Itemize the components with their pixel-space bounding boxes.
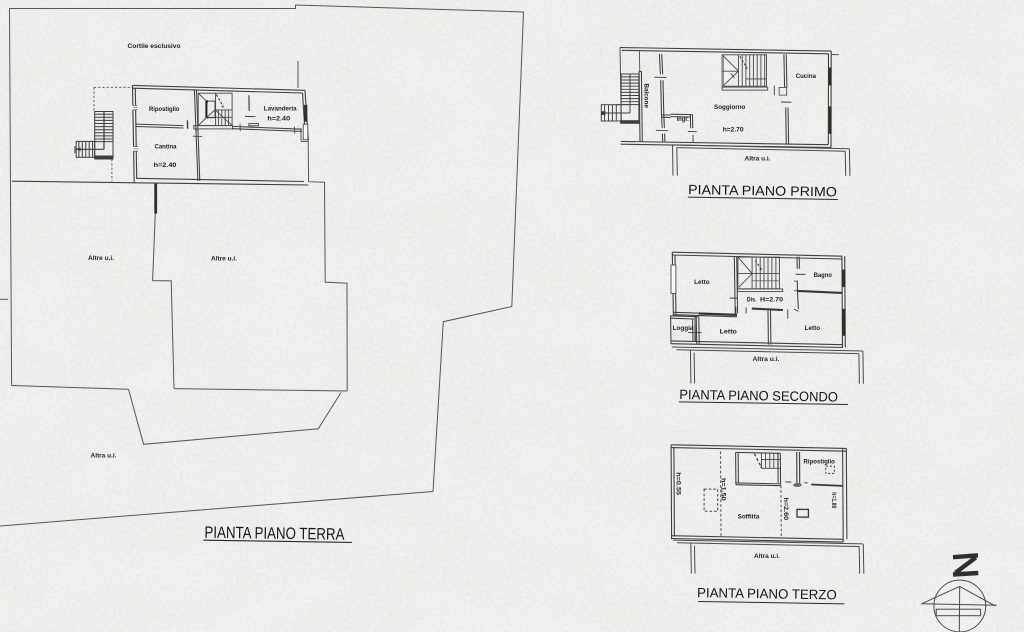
svg-text:Altra u.i.: Altra u.i.: [91, 453, 117, 460]
svg-text:Letto: Letto: [694, 279, 710, 286]
svg-text:Letto: Letto: [805, 325, 821, 332]
svg-text:H=2.70: H=2.70: [760, 297, 783, 304]
svg-text:h=1.80: h=1.80: [830, 492, 837, 509]
svg-text:Cantina: Cantina: [155, 144, 177, 151]
svg-text:Bagno: Bagno: [814, 272, 832, 279]
svg-text:Altra u.i.: Altra u.i.: [754, 553, 780, 560]
svg-text:Letto: Letto: [720, 328, 737, 335]
svg-text:Cortile esclusivo: Cortile esclusivo: [128, 43, 181, 50]
svg-text:Soggiorno: Soggiorno: [714, 104, 745, 111]
svg-text:Altre u.i.: Altre u.i.: [88, 255, 114, 262]
svg-text:Altra u.i.: Altra u.i.: [753, 356, 780, 363]
svg-text:h=0.55: h=0.55: [675, 472, 682, 495]
svg-text:Cucina: Cucina: [796, 73, 816, 80]
svg-text:h=2.40: h=2.40: [154, 162, 177, 169]
svg-text:Balcone: Balcone: [643, 84, 650, 109]
svg-text:Altre u.i.: Altre u.i.: [211, 256, 237, 263]
svg-text:Altra u.i.: Altra u.i.: [745, 155, 771, 162]
svg-text:Ripostiglio: Ripostiglio: [804, 459, 835, 466]
svg-text:h=2.60: h=2.60: [782, 498, 789, 521]
svg-text:h=2.70: h=2.70: [723, 127, 744, 134]
svg-text:Ingr.: Ingr.: [677, 116, 689, 123]
svg-text:Lavanderia: Lavanderia: [264, 105, 297, 112]
svg-text:h=1.50: h=1.50: [719, 478, 726, 501]
svg-text:Ripostiglio: Ripostiglio: [149, 106, 180, 113]
svg-text:Dis.: Dis.: [747, 297, 757, 304]
svg-text:h=2.40: h=2.40: [267, 115, 290, 122]
svg-text:Soffitta: Soffitta: [738, 514, 760, 521]
svg-text:PIANTA PIANO PRIMO: PIANTA PIANO PRIMO: [688, 182, 837, 199]
svg-text:PIANTA PIANO TERZO: PIANTA PIANO TERZO: [697, 585, 837, 602]
svg-text:Loggia: Loggia: [673, 325, 694, 332]
